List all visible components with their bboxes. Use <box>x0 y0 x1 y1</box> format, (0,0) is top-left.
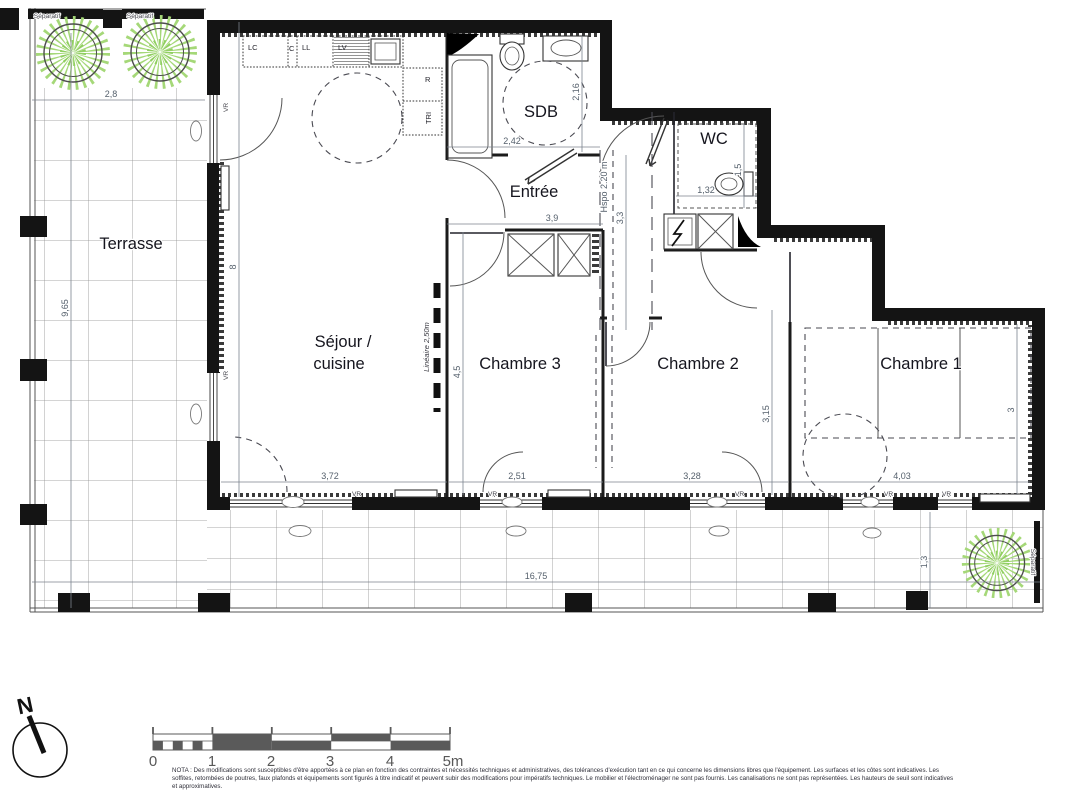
vr-label: VR <box>884 491 893 498</box>
dim-sejour-width: 3,72 <box>321 471 339 481</box>
separatif-planters: Séparatif Séparatif <box>0 8 204 82</box>
chambre1-furniture <box>803 328 1031 498</box>
door-arc-entree <box>447 160 505 218</box>
separatif-label: Séparatif <box>34 13 61 20</box>
terrace-left <box>28 8 207 612</box>
dim-terrace-height: 9,65 <box>60 299 70 317</box>
dim-wc-width: 1,32 <box>697 185 715 195</box>
hspo-label: Hspo 2.20 m <box>599 161 609 212</box>
kitchen-lv-label: LV <box>338 43 347 52</box>
bathtub <box>448 55 492 158</box>
kitchen-lc-label: LC <box>248 43 258 52</box>
vr-label: VR <box>223 371 230 380</box>
toilet-sdb <box>500 34 524 70</box>
room-label-chambre1: Chambre 1 <box>880 355 962 373</box>
door-arc-wc <box>600 116 664 178</box>
window-arcs <box>232 437 762 492</box>
bed-zone <box>805 328 1031 438</box>
north-compass: N <box>13 692 67 777</box>
window-chambre2 <box>690 497 765 510</box>
north-label: N <box>15 692 36 720</box>
door-leaf-sdb <box>525 149 577 184</box>
vr-label: VR <box>223 103 230 112</box>
dim-sdb-width: 2,42 <box>503 136 521 146</box>
nota-line2: soffites, retombées de poutres, faux pla… <box>172 775 953 782</box>
dim-hall-height: 3,3 <box>615 212 625 225</box>
door-arc-chambre3 <box>450 232 504 286</box>
dining-table <box>312 73 402 163</box>
separatif-label: Séparatif <box>127 13 154 20</box>
dim-chambre2-height: 3,15 <box>761 405 771 423</box>
room-label-sejour-line2: cuisine <box>313 355 364 373</box>
kitchen-tri-label: TRI <box>424 112 433 124</box>
window-sill <box>395 490 437 497</box>
nota-line1: NOTA : Des modifications sont susceptibl… <box>172 767 939 774</box>
room-label-entree: Entrée <box>510 183 559 201</box>
vr-label: VR <box>735 491 744 498</box>
window-sill <box>980 494 1030 502</box>
lineaire-label: Linéaire 2,50m <box>422 322 431 372</box>
room-label-sdb: SDB <box>524 103 558 121</box>
compass-needle <box>29 716 44 753</box>
dim-terrace-bottom-height: 1,3 <box>919 556 929 569</box>
floorplan-drawing: Séparatif Séparatif Séparatif <box>0 0 1076 800</box>
dim-sdb-height: 2,16 <box>571 83 581 101</box>
vr-labels: VR VR VR VR VR VR VR <box>223 103 951 498</box>
window-chambre1-b <box>938 497 972 510</box>
entree-closets <box>508 234 599 276</box>
vr-label: VR <box>942 491 951 498</box>
tree-icon <box>131 23 189 81</box>
room-label-chambre3: Chambre 3 <box>479 355 561 373</box>
dim-terrace-width: 2,8 <box>105 89 118 99</box>
dim-chambre2-width: 3,28 <box>683 471 701 481</box>
dim-chambre1-height: 3 <box>1006 407 1016 412</box>
door-leaf-wc <box>646 118 668 166</box>
sink-sdb <box>543 36 588 61</box>
dim-entree-width: 3,9 <box>546 213 559 223</box>
dim-chambre3-height: 4,5 <box>452 366 462 379</box>
dim-facade-height: 8 <box>228 264 238 269</box>
closet-x <box>508 234 554 276</box>
nota-disclaimer: NOTA : Des modifications sont susceptibl… <box>172 767 953 790</box>
dim-chambre3-width: 2,51 <box>508 471 526 481</box>
lineaire-bar: Linéaire 2,50m <box>422 283 437 412</box>
dim-chambre1-width: 4,03 <box>893 471 911 481</box>
scale-bar: 0 1 2 3 4 5m <box>149 727 464 770</box>
dim-wc-height: 1,5 <box>733 164 743 177</box>
room-label-terrasse: Terrasse <box>99 235 162 253</box>
window-sejour-left-top <box>207 95 220 163</box>
windows <box>207 95 1030 510</box>
kitchen-c-label: C <box>289 44 295 53</box>
turning-circle-ch1 <box>803 414 887 498</box>
kitchen-units: LC C LL LV R TRI <box>243 36 442 163</box>
nota-line3: et approximatives. <box>172 783 222 790</box>
scale-tick-0: 0 <box>149 753 157 770</box>
dim-terrace-bottom-width: 16,75 <box>525 571 548 581</box>
radiator <box>221 166 229 210</box>
separatif-label: Séparatif <box>1029 549 1036 576</box>
vr-label: VR <box>488 491 497 498</box>
kitchen-ll-label: LL <box>302 43 310 52</box>
closet-x <box>558 234 590 276</box>
window-sejour-left-bottom <box>207 373 220 441</box>
vr-label: VR <box>352 491 361 498</box>
door-arc-hall <box>701 252 757 308</box>
kitchen-r-label: R <box>425 75 431 84</box>
tree-icon <box>44 24 102 82</box>
room-label-wc: WC <box>700 130 728 148</box>
room-label-sejour-line1: Séjour / <box>315 333 372 351</box>
electrical-panel <box>664 214 696 249</box>
window-sill <box>548 490 590 497</box>
threshold-marker <box>447 33 479 57</box>
floorplan-page: Séparatif Séparatif Séparatif <box>0 0 1076 800</box>
room-label-chambre2: Chambre 2 <box>657 355 739 373</box>
technical-closets <box>664 214 733 249</box>
closet-x <box>698 214 733 249</box>
terrace-tile-grid <box>34 88 207 608</box>
partitions <box>447 33 790 497</box>
